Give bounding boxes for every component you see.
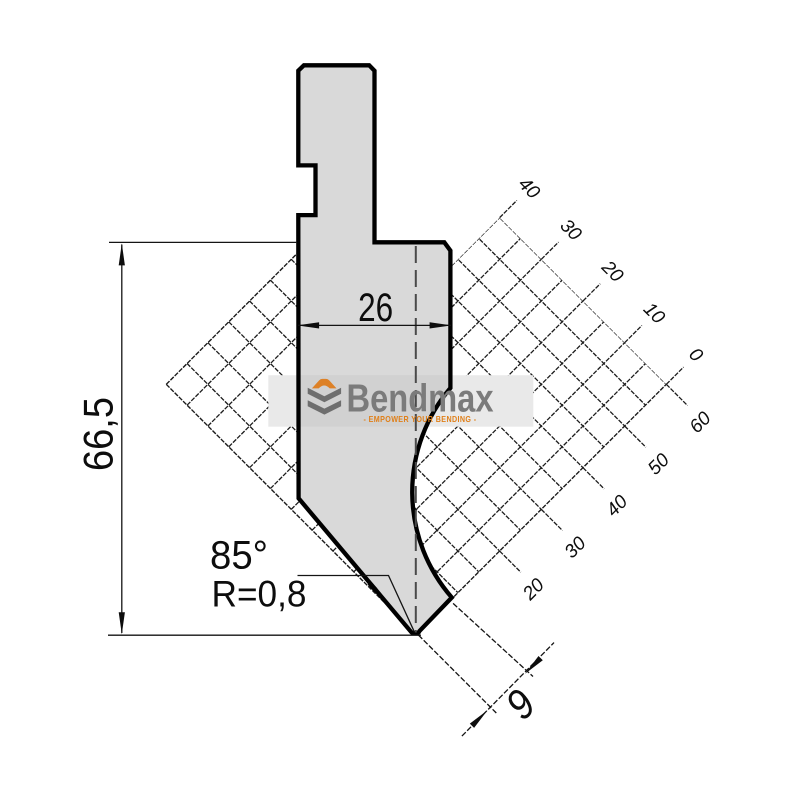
svg-text:30: 30 [556,215,586,245]
svg-text:60: 60 [686,408,716,438]
svg-text:26: 26 [358,286,393,330]
svg-text:50: 50 [644,449,674,479]
svg-text:- EMPOWER YOUR BENDING -: - EMPOWER YOUR BENDING - [364,415,477,424]
svg-text:40: 40 [514,174,544,204]
svg-text:30: 30 [561,533,591,563]
svg-text:40: 40 [602,491,632,521]
svg-text:20: 20 [597,256,628,287]
svg-text:10: 10 [639,299,669,329]
svg-text:0: 0 [684,344,707,367]
svg-text:85°: 85° [210,534,268,578]
svg-text:20: 20 [518,574,549,605]
svg-text:R=0,8: R=0,8 [212,574,307,615]
svg-text:66,5: 66,5 [75,397,122,471]
svg-text:9: 9 [496,680,544,728]
